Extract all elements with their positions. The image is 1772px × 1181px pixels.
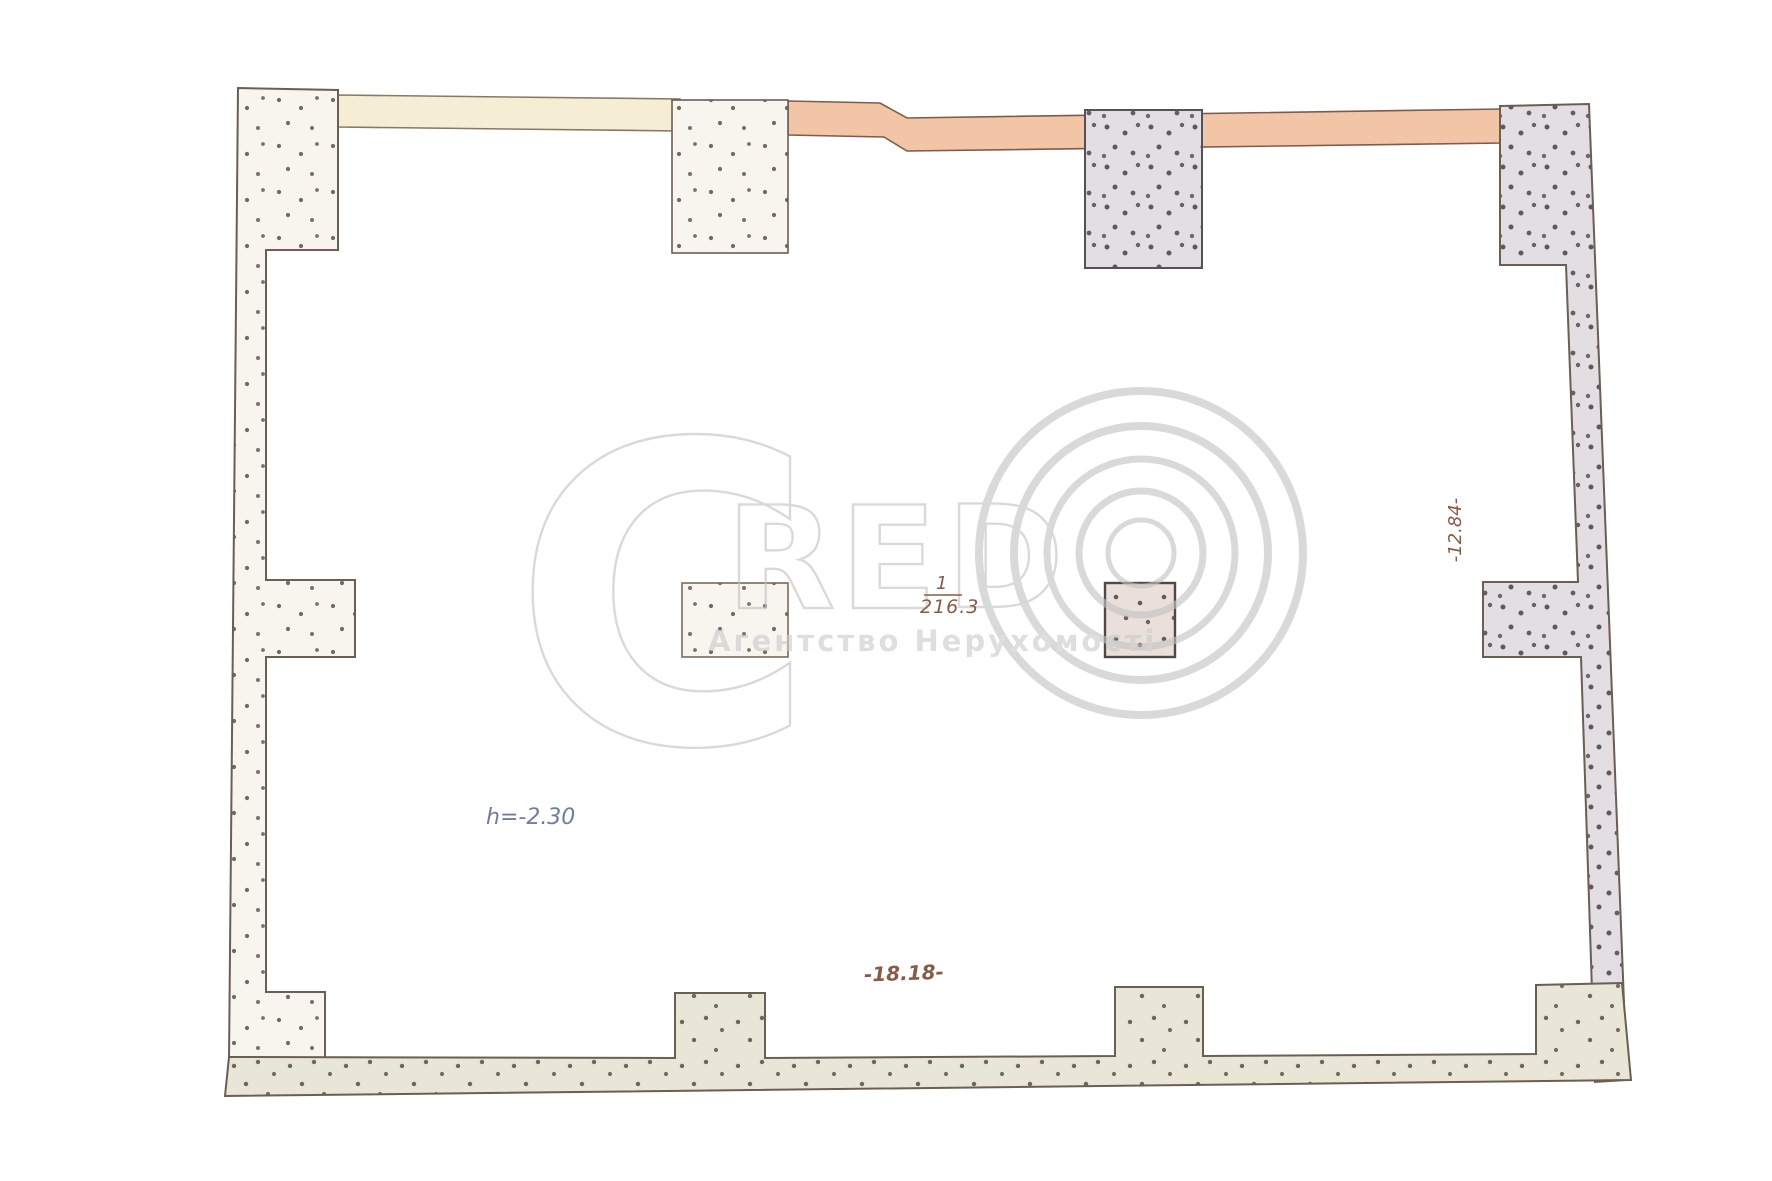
top-wall-band-cream (338, 95, 680, 131)
right-wall (1483, 104, 1627, 1082)
room-number-label: 1 (936, 573, 947, 594)
left-wall (229, 88, 355, 1060)
top-middle-column (672, 100, 788, 253)
bottom-wall (225, 983, 1631, 1096)
width-dimension-label: -18.18- (864, 960, 945, 987)
ceiling-height-label: h=-2.30 (486, 805, 575, 830)
height-dimension-label: -12.84- (1445, 498, 1466, 563)
room-area-label: 216.3 (920, 596, 979, 618)
floor-plan-page: C R E D Агентство Нерухомості 1 216.3 h=… (0, 0, 1772, 1181)
top-right-column (1085, 110, 1202, 268)
floor-plan-drawing: C R E D Агентство Нерухомості 1 216.3 h=… (0, 0, 1772, 1181)
credo-watermark: C R E D Агентство Нерухомості (512, 357, 1303, 840)
watermark-letter-r-icon: R (726, 477, 835, 642)
watermark-agency-text: Агентство Нерухомості (708, 624, 1157, 658)
